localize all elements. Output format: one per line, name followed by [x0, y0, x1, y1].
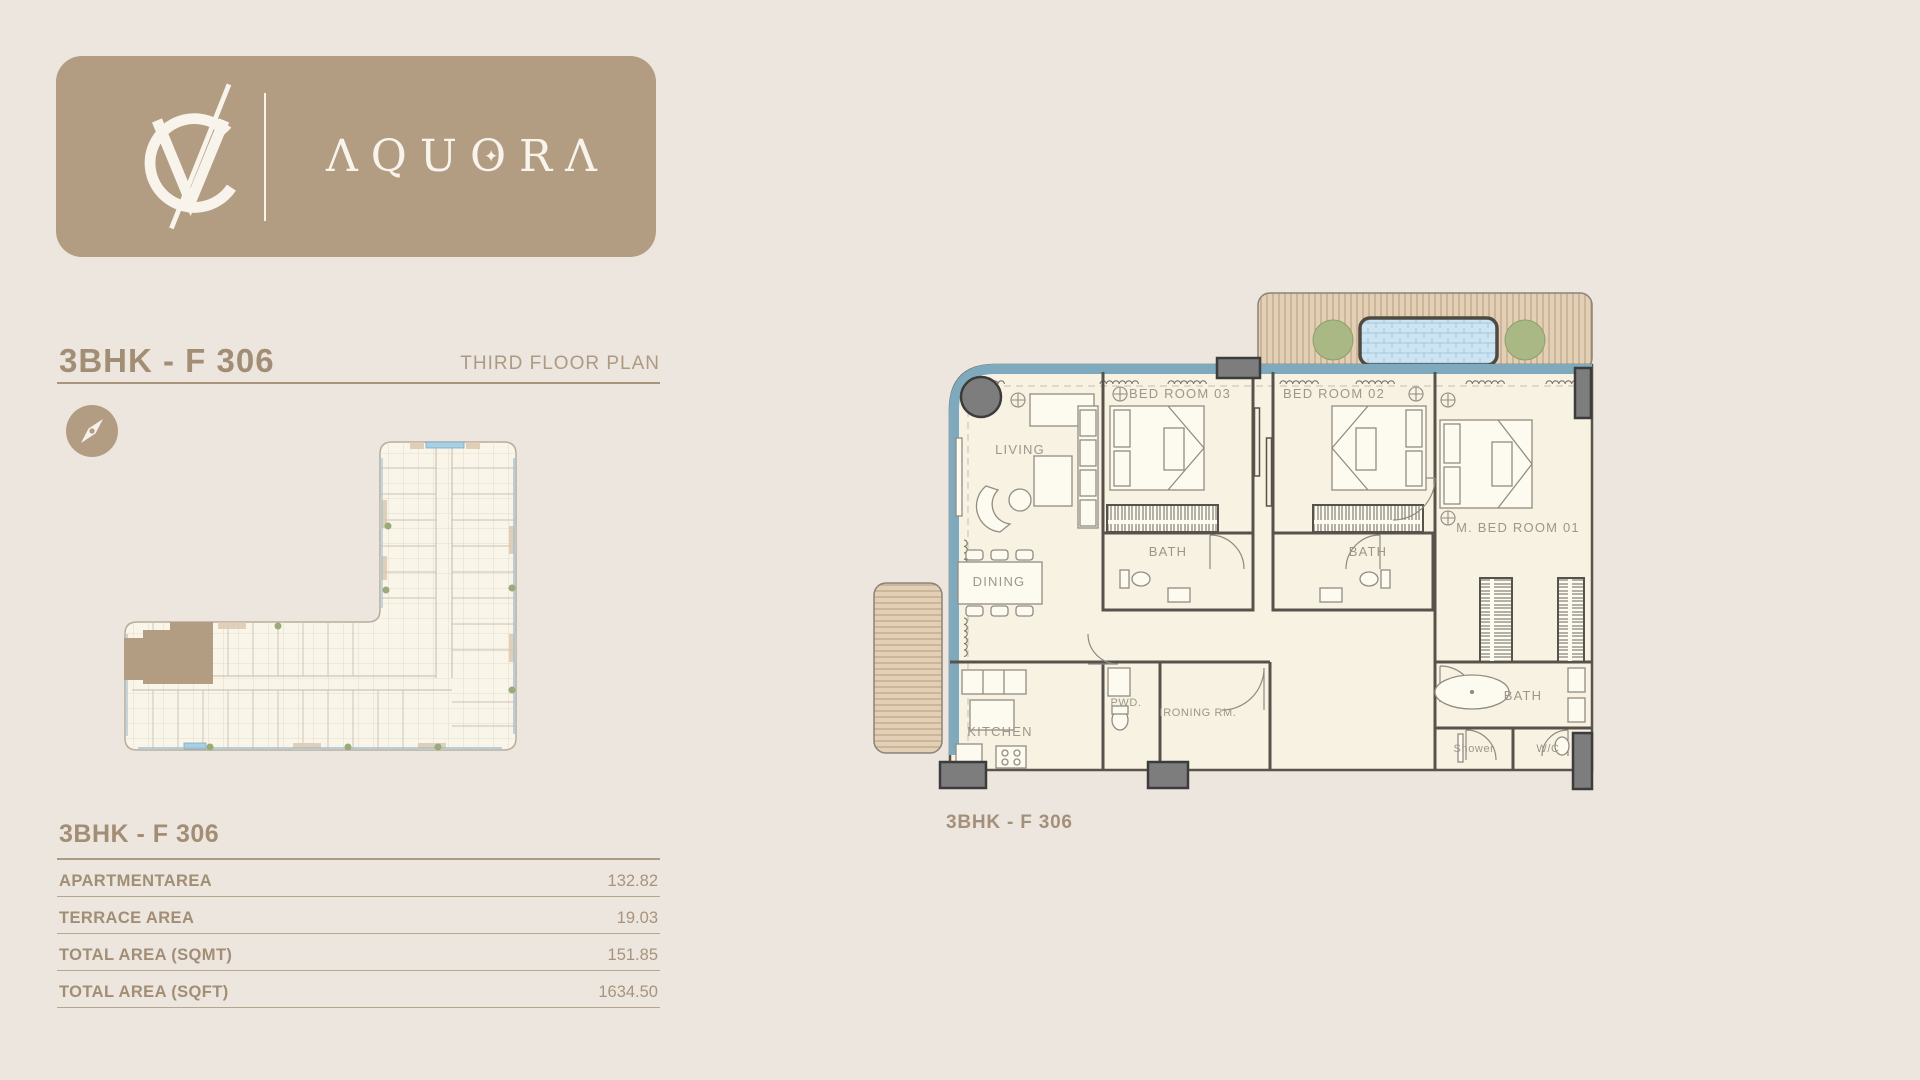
- bed-master: [1440, 420, 1532, 508]
- room-label-mbath: BATH: [1504, 688, 1543, 703]
- bed-bedroom3: [1110, 406, 1204, 490]
- room-label-bedroom3: BED ROOM 03: [1129, 386, 1231, 401]
- row-value: 19.03: [617, 909, 658, 928]
- star-icon: ✦: [484, 147, 498, 167]
- vc-monogram-logo: [118, 82, 268, 232]
- table-row: APARTMENTAREA 132.82: [57, 860, 660, 897]
- tree-icon: [1313, 320, 1353, 360]
- room-label-kitchen: KITCHEN: [967, 724, 1032, 739]
- area-table: 3BHK - F 306 APARTMENTAREA 132.82 TERRAC…: [57, 820, 660, 1008]
- plan-header: 3BHK - F 306 THIRD FLOOR PLAN: [57, 330, 660, 384]
- room-label-pwd: PWD.: [1110, 697, 1141, 709]
- row-value: 1634.50: [598, 983, 658, 1002]
- page-title: 3BHK - F 306: [59, 342, 275, 380]
- floor-subtitle: THIRD FLOOR PLAN: [460, 353, 660, 375]
- key-plan-building: [118, 438, 562, 758]
- room-label-living: LIVING: [995, 442, 1045, 457]
- row-label: APARTMENTAREA: [59, 872, 212, 891]
- room-label-ironing: IRONING RM.: [1160, 707, 1237, 719]
- room-label-bedroom2: BED ROOM 02: [1283, 386, 1385, 401]
- room-label-wc: W/C: [1536, 743, 1559, 755]
- wordmark-o: O✦: [470, 131, 519, 182]
- row-value: 132.82: [608, 872, 658, 891]
- row-value: 151.85: [608, 946, 658, 965]
- brand-wordmark: ΛQUO✦RΛ: [294, 56, 642, 257]
- room-label-shower: Shower: [1454, 743, 1495, 755]
- room-label-master: M. BED ROOM 01: [1456, 520, 1580, 535]
- logo-divider: [264, 93, 266, 221]
- table-row: TOTAL AREA (SQMT) 151.85: [57, 934, 660, 971]
- unit-floor-plan: LIVING DINING KITCHEN BED ROOM 03 BED RO…: [868, 288, 1608, 808]
- area-table-title: 3BHK - F 306: [57, 820, 660, 860]
- row-label: TERRACE AREA: [59, 909, 194, 928]
- brand-card: ΛQUO✦RΛ: [56, 56, 656, 257]
- table-row: TERRACE AREA 19.03: [57, 897, 660, 934]
- bed-bedroom2: [1332, 406, 1426, 490]
- room-label-bath2: BATH: [1349, 544, 1388, 559]
- compass-icon: [66, 405, 118, 457]
- side-terrace-deck: [874, 583, 942, 753]
- terrace-pool-deck: [1258, 293, 1592, 370]
- pool: [1360, 318, 1497, 365]
- row-label: TOTAL AREA (SQMT): [59, 946, 232, 965]
- row-label: TOTAL AREA (SQFT): [59, 983, 229, 1002]
- room-label-dining: DINING: [973, 574, 1026, 589]
- room-label-bath3: BATH: [1149, 544, 1188, 559]
- wordmark-pre: ΛQU: [326, 131, 470, 182]
- table-row: TOTAL AREA (SQFT) 1634.50: [57, 971, 660, 1008]
- tree-icon: [1505, 320, 1545, 360]
- wordmark-post: RΛ: [519, 131, 610, 182]
- unit-caption: 3BHK - F 306: [946, 812, 1073, 834]
